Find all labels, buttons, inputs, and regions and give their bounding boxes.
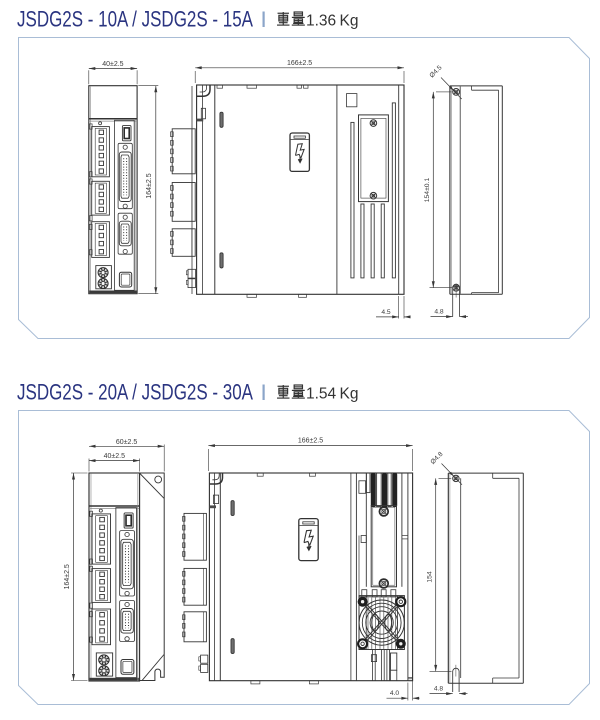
svg-text:154: 154 (426, 571, 433, 583)
svg-text:Ø4.8: Ø4.8 (429, 451, 444, 466)
svg-text:166±2.5: 166±2.5 (298, 438, 323, 445)
svg-text:154±0.1: 154±0.1 (424, 178, 431, 203)
svg-text:4.8: 4.8 (434, 308, 444, 315)
svg-text:Kg: Kg (340, 386, 359, 403)
svg-text:Kg: Kg (340, 13, 359, 30)
svg-text:60±2.5: 60±2.5 (116, 439, 137, 446)
svg-text:4.5: 4.5 (381, 309, 391, 316)
svg-text:1.54: 1.54 (306, 386, 337, 403)
svg-text:Ø4.5: Ø4.5 (428, 64, 443, 79)
svg-text:4.8: 4.8 (434, 686, 444, 693)
svg-text:JSDG2S - 20A / JSDG2S - 30A: JSDG2S - 20A / JSDG2S - 30A (17, 380, 253, 405)
svg-text:4.0: 4.0 (390, 690, 400, 697)
svg-text:166±2.5: 166±2.5 (287, 60, 312, 67)
svg-text:40±2.5: 40±2.5 (102, 61, 123, 68)
svg-text:1.36: 1.36 (306, 13, 336, 30)
svg-text:164±2.5: 164±2.5 (64, 564, 71, 589)
svg-text:JSDG2S - 10A / JSDG2S - 15A: JSDG2S - 10A / JSDG2S - 15A (17, 7, 253, 32)
svg-text:164±2.5: 164±2.5 (146, 173, 153, 198)
svg-text:40±2.5: 40±2.5 (104, 453, 125, 460)
